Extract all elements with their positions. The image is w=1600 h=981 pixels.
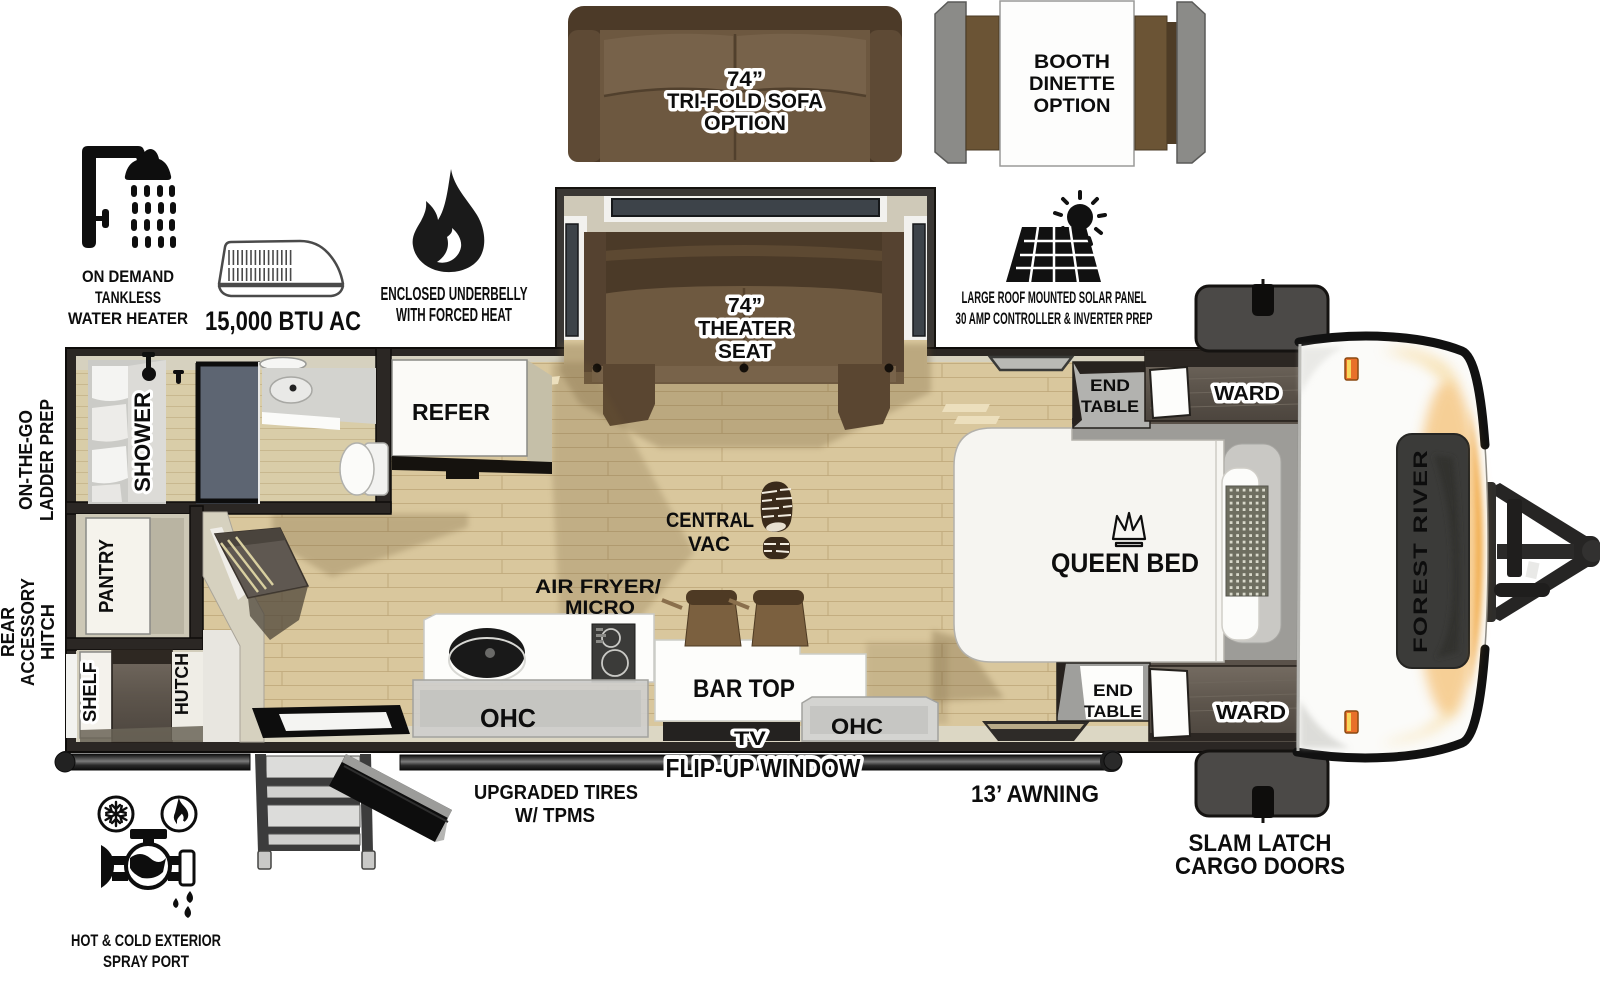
svg-text:74”: 74” bbox=[727, 68, 763, 91]
svg-text:HUTCH: HUTCH bbox=[172, 653, 192, 715]
svg-text:WITH FORCED HEAT: WITH FORCED HEAT bbox=[396, 305, 512, 325]
svg-text:QUEEN BED: QUEEN BED bbox=[1051, 548, 1199, 578]
svg-text:15,000 BTU AC: 15,000 BTU AC bbox=[205, 306, 361, 336]
svg-text:WARD: WARD bbox=[1214, 383, 1280, 405]
svg-text:HOT & COLD EXTERIOR: HOT & COLD EXTERIOR bbox=[71, 931, 221, 950]
svg-text:VAC: VAC bbox=[688, 533, 730, 556]
svg-text:W/ TPMS: W/ TPMS bbox=[515, 805, 595, 827]
svg-text:UPGRADED TIRES: UPGRADED TIRES bbox=[474, 782, 638, 804]
svg-text:OPTION: OPTION bbox=[1034, 96, 1111, 117]
svg-text:OHC: OHC bbox=[480, 703, 536, 733]
svg-text:FLIP-UP WINDOW: FLIP-UP WINDOW bbox=[666, 753, 861, 783]
svg-text:LADDER PREP: LADDER PREP bbox=[37, 399, 57, 521]
svg-text:REAR: REAR bbox=[0, 607, 18, 657]
svg-text:THEATER: THEATER bbox=[698, 318, 793, 340]
svg-text:BOOTH: BOOTH bbox=[1034, 52, 1110, 73]
svg-text:74”: 74” bbox=[728, 295, 762, 317]
svg-text:13’ AWNING: 13’ AWNING bbox=[971, 781, 1099, 808]
svg-text:SEAT: SEAT bbox=[718, 341, 772, 363]
svg-text:ON DEMAND: ON DEMAND bbox=[82, 267, 174, 286]
svg-text:OPTION: OPTION bbox=[704, 112, 786, 135]
svg-text:END: END bbox=[1093, 681, 1133, 700]
svg-text:CENTRAL: CENTRAL bbox=[666, 509, 754, 532]
svg-text:WARD: WARD bbox=[1216, 702, 1286, 724]
svg-text:SHELF: SHELF bbox=[80, 662, 100, 722]
svg-text:END: END bbox=[1090, 376, 1130, 395]
svg-text:TANKLESS: TANKLESS bbox=[95, 288, 161, 307]
svg-text:SHOWER: SHOWER bbox=[130, 392, 155, 492]
svg-text:BAR TOP: BAR TOP bbox=[693, 675, 795, 703]
svg-text:TABLE: TABLE bbox=[1081, 397, 1139, 416]
svg-text:AIR FRYER/: AIR FRYER/ bbox=[535, 577, 662, 598]
svg-text:SPRAY PORT: SPRAY PORT bbox=[103, 952, 189, 971]
svg-text:FOREST RIVER: FOREST RIVER bbox=[1411, 449, 1432, 653]
svg-text:TABLE: TABLE bbox=[1084, 702, 1142, 721]
svg-text:LARGE ROOF MOUNTED SOLAR PANEL: LARGE ROOF MOUNTED SOLAR PANEL bbox=[962, 289, 1147, 307]
svg-text:30 AMP CONTROLLER & INVERTER P: 30 AMP CONTROLLER & INVERTER PREP bbox=[956, 310, 1153, 328]
svg-text:DINETTE: DINETTE bbox=[1029, 74, 1115, 95]
svg-text:OHC: OHC bbox=[831, 714, 883, 739]
svg-text:TRI-FOLD SOFA: TRI-FOLD SOFA bbox=[667, 90, 823, 113]
svg-text:TV: TV bbox=[734, 729, 766, 750]
svg-text:PANTRY: PANTRY bbox=[96, 538, 118, 613]
svg-text:REFER: REFER bbox=[412, 399, 490, 425]
svg-text:CARGO DOORS: CARGO DOORS bbox=[1175, 853, 1345, 880]
svg-text:HITCH: HITCH bbox=[38, 604, 58, 660]
svg-text:MICRO: MICRO bbox=[565, 598, 635, 619]
svg-text:ACCESSORY: ACCESSORY bbox=[18, 578, 38, 686]
svg-text:WATER HEATER: WATER HEATER bbox=[68, 309, 188, 328]
svg-text:ENCLOSED UNDERBELLY: ENCLOSED UNDERBELLY bbox=[381, 284, 528, 304]
svg-text:ON-THE-GO: ON-THE-GO bbox=[16, 410, 36, 510]
